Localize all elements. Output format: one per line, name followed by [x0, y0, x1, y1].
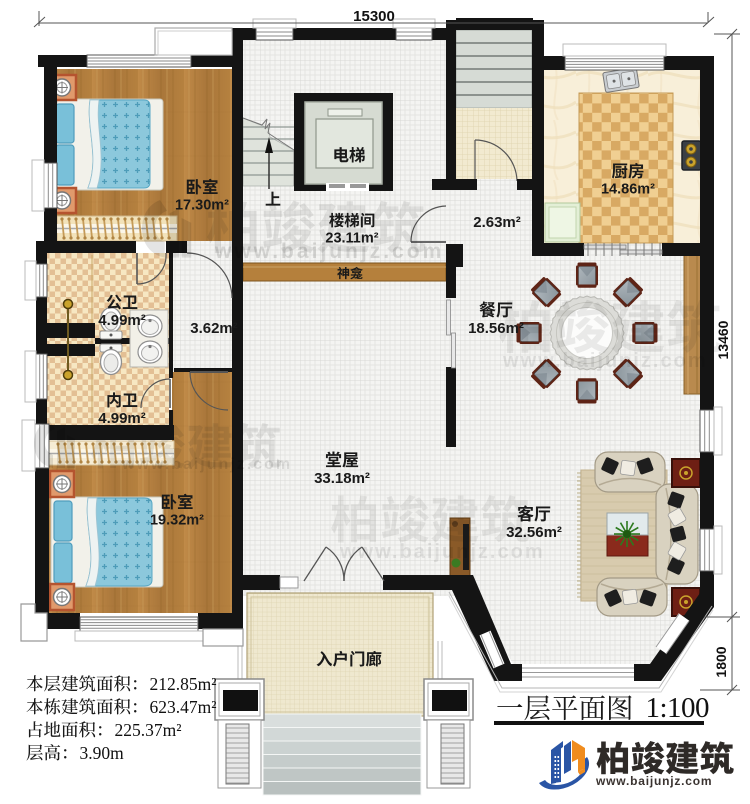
svg-text:3.62m²: 3.62m²: [190, 320, 238, 337]
svg-text:17.30m²: 17.30m²: [175, 198, 229, 214]
svg-text:www.baijunjz.com: www.baijunjz.com: [214, 240, 444, 263]
svg-text:www.baijunjz.com: www.baijunjz.com: [595, 774, 712, 788]
svg-text:www.baijunjz.com: www.baijunjz.com: [121, 456, 292, 473]
svg-text:www.baijunjz.com: www.baijunjz.com: [339, 541, 545, 563]
svg-text:212.85m²: 212.85m²: [150, 674, 217, 694]
svg-text:623.47m²: 623.47m²: [150, 697, 217, 717]
svg-text:4.99m²: 4.99m²: [98, 312, 146, 329]
svg-text:33.18m²: 33.18m²: [314, 470, 370, 487]
svg-text:225.37m²: 225.37m²: [115, 720, 182, 740]
svg-text:15300: 15300: [353, 8, 395, 25]
svg-text:1800: 1800: [713, 646, 729, 677]
svg-text:www.baijunjz.com: www.baijunjz.com: [502, 350, 708, 372]
svg-text:2.63m²: 2.63m²: [473, 214, 521, 231]
svg-text:19.32m²: 19.32m²: [150, 513, 204, 529]
svg-text:13460: 13460: [715, 320, 731, 359]
svg-text:3.90m: 3.90m: [80, 743, 125, 763]
svg-text:14.86m²: 14.86m²: [601, 182, 655, 198]
svg-text:1:100: 1:100: [646, 692, 710, 724]
